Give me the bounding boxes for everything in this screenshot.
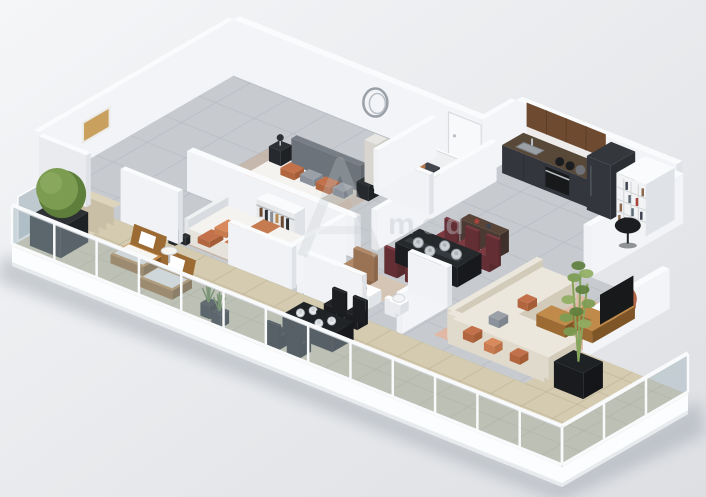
- floorplan-render: med: [0, 0, 706, 497]
- floorplan-canvas: [0, 0, 706, 497]
